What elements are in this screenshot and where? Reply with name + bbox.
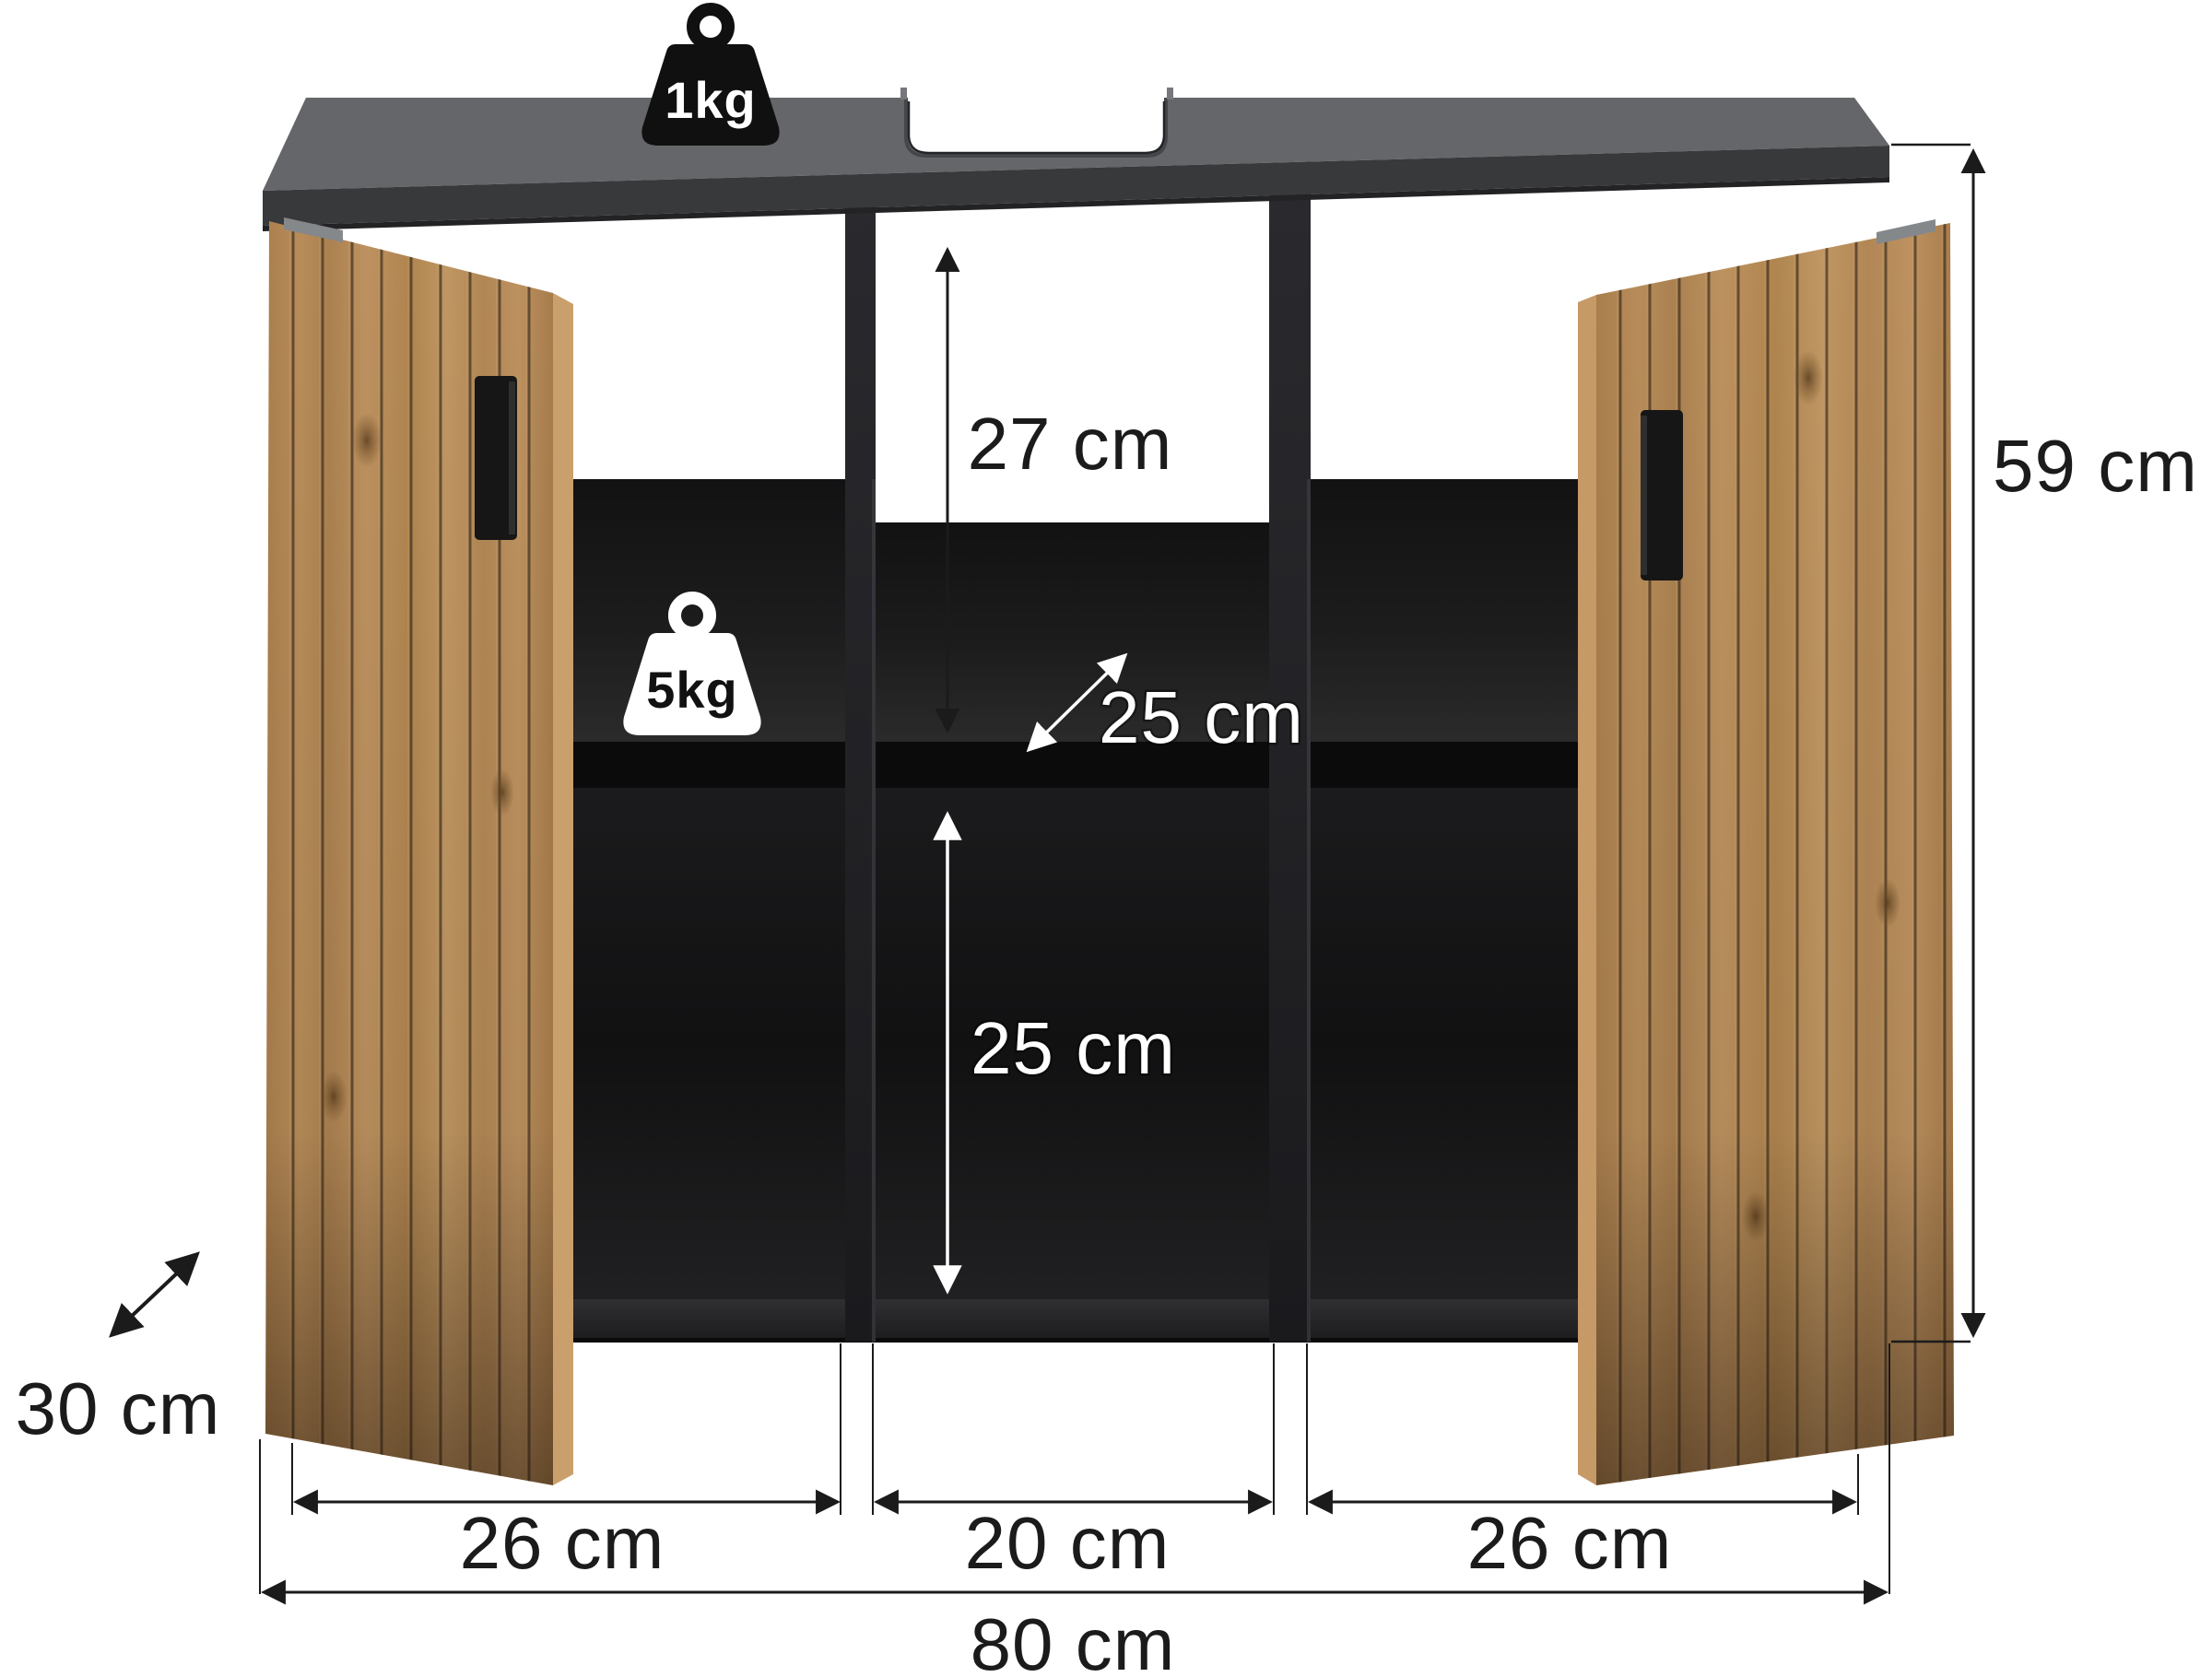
top-compartment-height-label: 27 cm: [968, 403, 1173, 485]
right-door: [1578, 219, 1958, 1487]
left-door-edge-face: [553, 293, 573, 1485]
upper-compartment-right-back: [1311, 479, 1578, 746]
dim-depth: 30 cm: [16, 1255, 221, 1449]
top-panel: [263, 88, 1889, 231]
divider-right-highlight: [1307, 479, 1311, 1342]
right-door-edge-face: [1578, 295, 1596, 1485]
right-width-label: 26 cm: [1467, 1502, 1673, 1584]
total-width-label: 80 cm: [971, 1603, 1176, 1677]
weight-ring: [693, 9, 728, 44]
top-load-label: 1kg: [665, 71, 757, 129]
divider-right: [1269, 189, 1311, 1342]
sink-cutout-lip-right: [1167, 88, 1173, 100]
depth-label: 30 cm: [16, 1367, 221, 1449]
shelf-load-label: 5kg: [646, 661, 738, 719]
left-door-handle-edge: [509, 381, 515, 534]
diagram-canvas: 5kg 25 cm 25 cm 1kg: [0, 0, 2212, 1677]
total-height-label: 59 cm: [1993, 425, 2198, 507]
shelf-depth-label: 25 cm: [1099, 676, 1304, 758]
bottom-height-label: 25 cm: [971, 1007, 1176, 1089]
shelf-front-edge: [567, 742, 1578, 788]
divider-left: [845, 189, 876, 1342]
cabinet-interior: [567, 189, 1578, 1343]
right-door-texture: [1593, 219, 1958, 1487]
left-door-texture: [265, 219, 575, 1487]
sink-cutout-inner-rim: [909, 101, 1164, 153]
bottom-panel-shadow-edge: [567, 1338, 1578, 1343]
bottom-panel: [567, 1299, 1578, 1342]
left-door: [265, 219, 575, 1487]
weight-1kg-icon: 1kg: [641, 9, 779, 146]
divider-left-highlight: [872, 479, 876, 1342]
sink-cutout: [906, 98, 1166, 156]
depth-arrow: [112, 1255, 196, 1334]
cabinet-dimension-diagram: 5kg 25 cm 25 cm 1kg: [0, 0, 2212, 1677]
left-width-label: 26 cm: [460, 1502, 665, 1584]
right-door-handle-edge: [1641, 416, 1647, 575]
middle-width-label: 20 cm: [965, 1502, 1171, 1584]
sink-cutout-lip-left: [900, 88, 907, 100]
